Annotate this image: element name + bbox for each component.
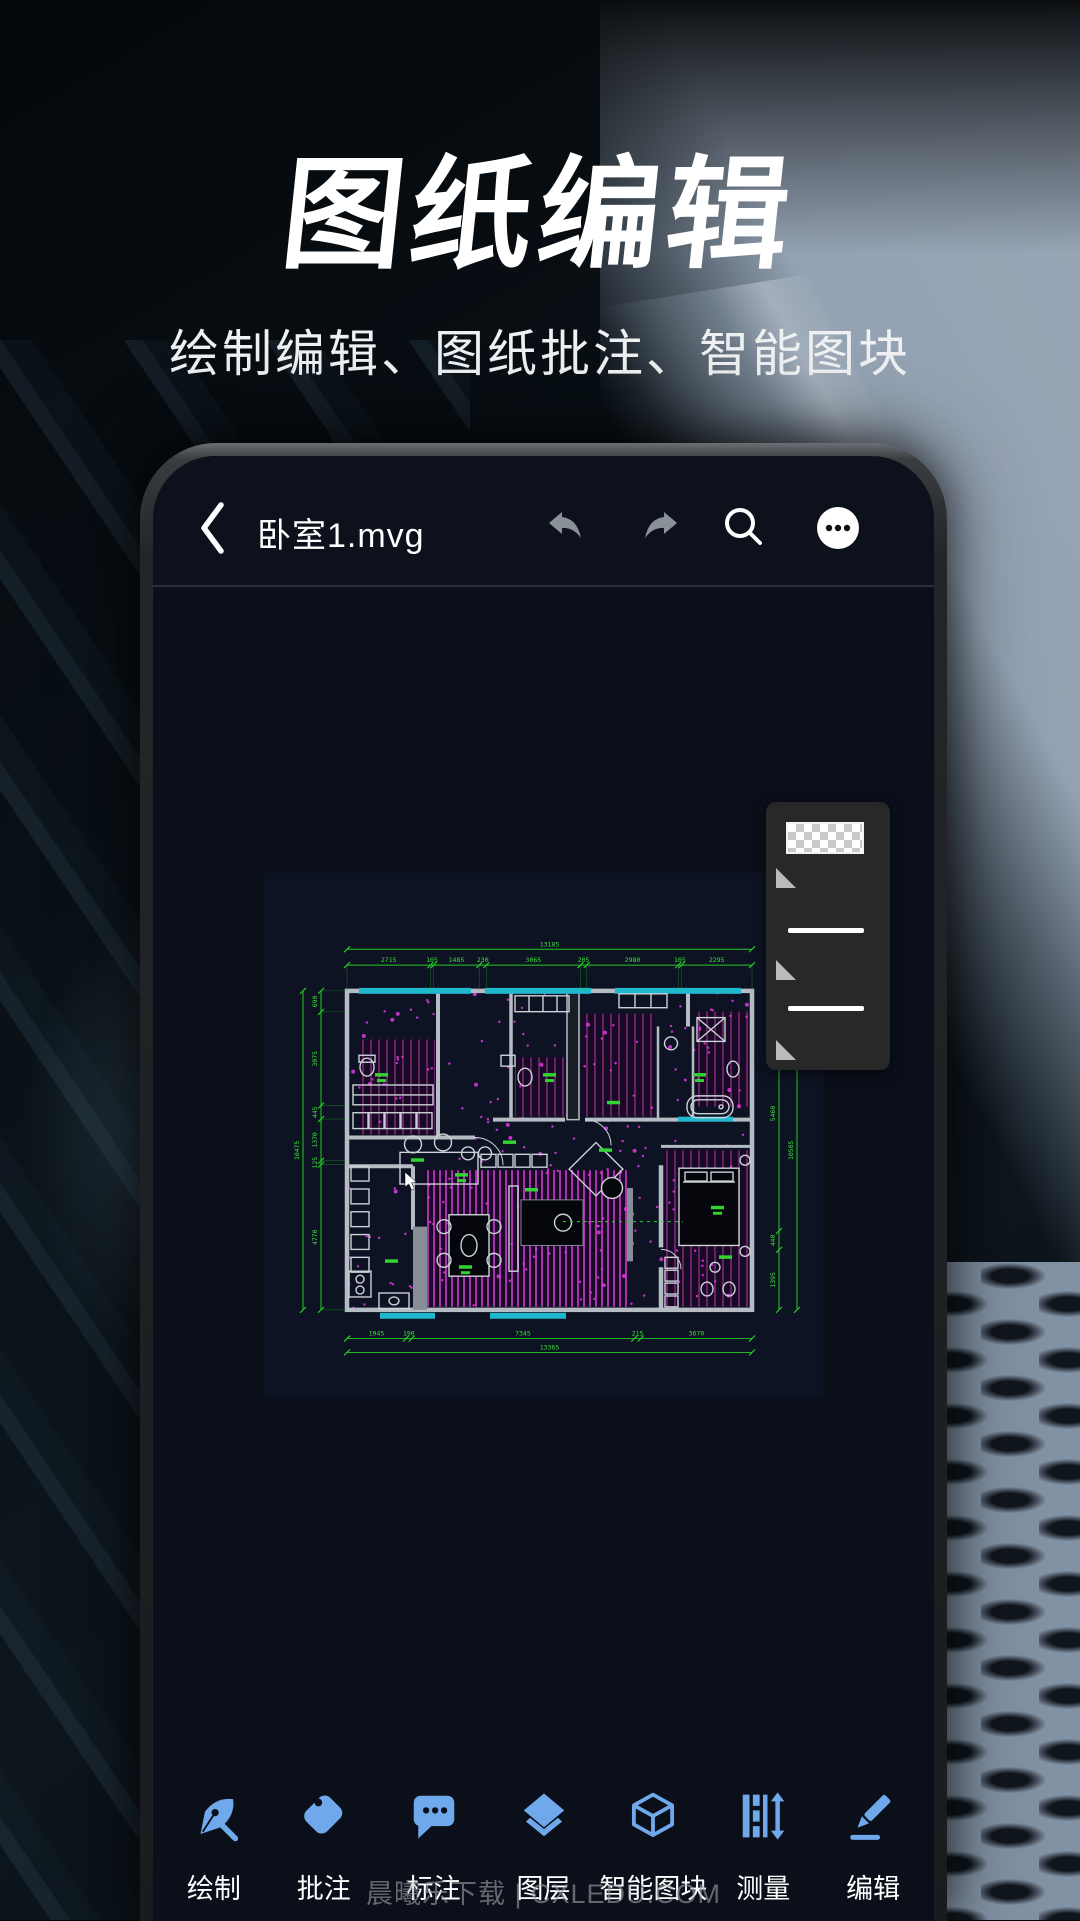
topbar-divider: [153, 585, 934, 587]
redo-icon: [638, 506, 682, 550]
svg-text:105: 105: [674, 956, 686, 964]
svg-text:2295: 2295: [709, 956, 725, 964]
svg-text:7345: 7345: [515, 1330, 531, 1338]
svg-text:2980: 2980: [625, 956, 641, 964]
cube-icon: [626, 1789, 680, 1843]
tool-options-panel: [766, 802, 890, 1070]
svg-text:13185: 13185: [540, 940, 560, 948]
svg-text:3075: 3075: [311, 1051, 319, 1067]
svg-text:2715: 2715: [381, 956, 397, 964]
svg-text:205: 205: [578, 956, 590, 964]
stroke-line-option[interactable]: [788, 1006, 864, 1011]
svg-text:1485: 1485: [449, 956, 465, 964]
floor-plan: 2715105148523030652052980105229513185194…: [263, 873, 823, 1398]
pen-nib-icon: [187, 1789, 241, 1843]
tag-icon: [297, 1789, 351, 1843]
pencil-icon: [846, 1789, 900, 1843]
svg-text:3670: 3670: [689, 1330, 705, 1338]
watermark: 晨曦乐下载 | CXLEDU.COM: [153, 1872, 934, 1911]
page-subtitle: 绘制编辑、图纸批注、智能图块: [0, 314, 1080, 386]
svg-text:690: 690: [311, 995, 319, 1007]
more-button[interactable]: [816, 506, 860, 555]
svg-text:10475: 10475: [293, 1141, 301, 1160]
svg-text:5460: 5460: [769, 1106, 777, 1122]
svg-text:3065: 3065: [526, 956, 542, 964]
svg-text:10585: 10585: [787, 1141, 795, 1160]
layers-icon: [517, 1789, 571, 1843]
measure-icon: [736, 1789, 790, 1843]
app-screen: 卧室1.mvg: [153, 456, 934, 1921]
svg-text:105: 105: [426, 956, 438, 964]
comment-dots-icon: [407, 1789, 461, 1843]
marker-triangle-icon[interactable]: [776, 868, 796, 888]
marker-triangle-icon[interactable]: [776, 1040, 796, 1060]
more-icon: [816, 506, 860, 550]
svg-text:1370: 1370: [311, 1132, 319, 1148]
svg-text:4770: 4770: [311, 1229, 319, 1245]
phone-frame: 卧室1.mvg: [140, 443, 947, 1921]
file-title: 卧室1.mvg: [257, 508, 425, 557]
svg-text:125: 125: [311, 1157, 319, 1169]
svg-text:230: 230: [477, 956, 489, 964]
undo-button[interactable]: [544, 506, 588, 555]
search-icon: [719, 502, 767, 550]
page-title: 图纸编辑: [0, 116, 1080, 293]
chevron-left-icon: [197, 500, 227, 556]
svg-text:190: 190: [403, 1330, 415, 1338]
svg-text:445: 445: [311, 1106, 319, 1118]
svg-text:13365: 13365: [540, 1343, 560, 1351]
marker-triangle-icon[interactable]: [776, 960, 796, 980]
search-button[interactable]: [719, 502, 767, 555]
svg-text:1945: 1945: [369, 1330, 385, 1338]
drawing-canvas[interactable]: 2715105148523030652052980105229513185194…: [263, 873, 823, 1398]
pattern-swatch[interactable]: [786, 822, 864, 854]
redo-button[interactable]: [638, 506, 682, 555]
undo-icon: [544, 506, 588, 550]
svg-text:1395: 1395: [769, 1272, 777, 1288]
back-button[interactable]: [197, 500, 227, 556]
svg-text:215: 215: [632, 1330, 644, 1338]
stroke-line-option[interactable]: [788, 928, 864, 933]
svg-text:440: 440: [769, 1234, 777, 1246]
